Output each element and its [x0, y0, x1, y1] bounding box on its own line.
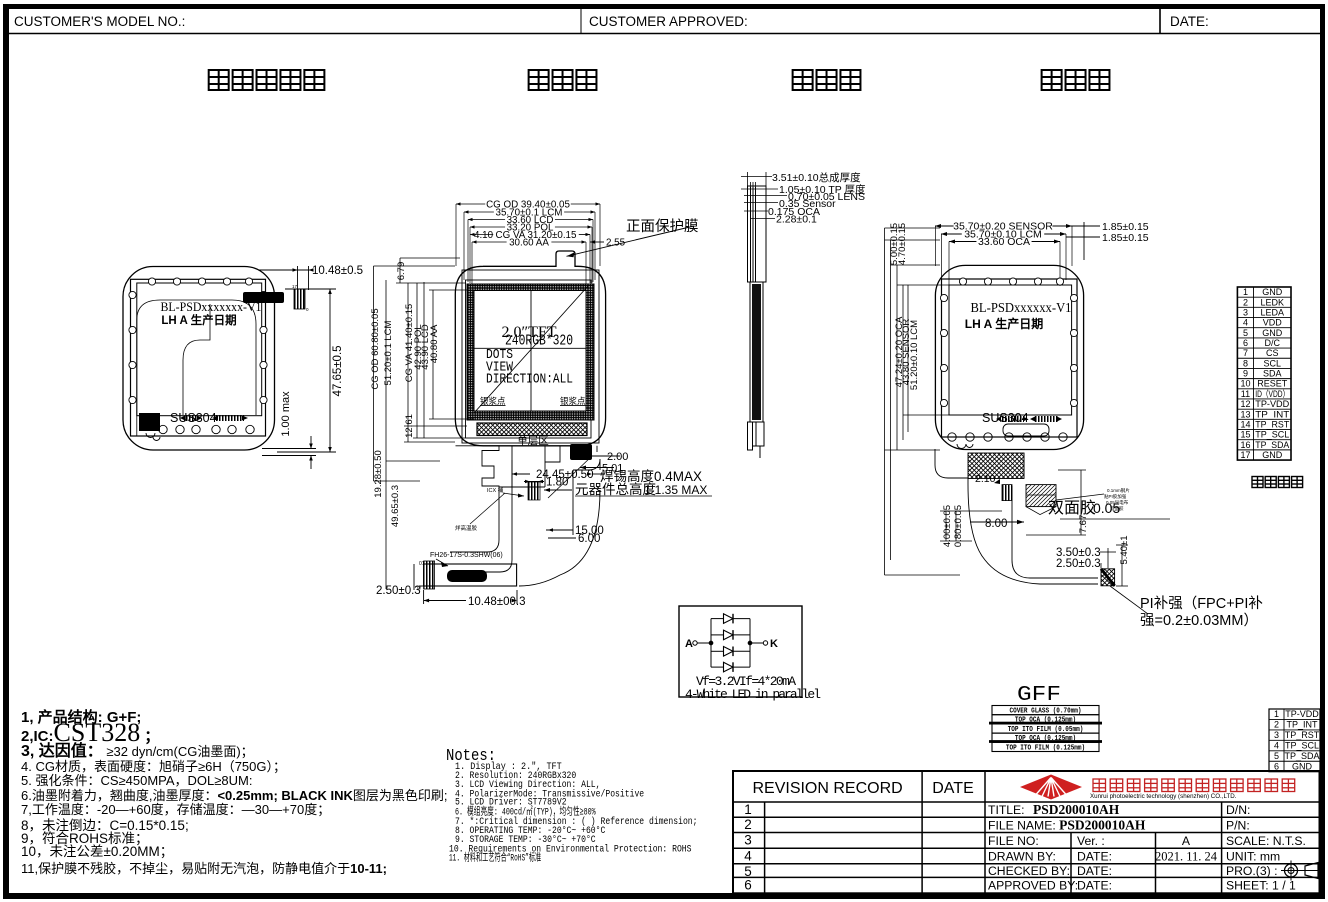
svg-text:12.61: 12.61 — [404, 414, 415, 438]
svg-text:TP_RST: TP_RST — [1255, 419, 1289, 429]
svg-text:TP_RST: TP_RST — [1285, 730, 1320, 740]
svg-text:LEDA: LEDA — [1260, 307, 1284, 317]
svg-text:UNIT: mm: UNIT: mm — [1226, 850, 1280, 864]
svg-text:16: 16 — [1240, 440, 1250, 450]
svg-text:Xunrui photoelectric technolog: Xunrui photoelectric technology (shenzhe… — [1090, 793, 1237, 800]
svg-text:正面保护膜: 正面保护膜 — [626, 218, 699, 235]
svg-text:A: A — [685, 638, 693, 650]
svg-text:1.00 max: 1.00 max — [280, 391, 292, 437]
svg-text:LH A 生产日期: LH A 生产日期 — [161, 313, 236, 327]
svg-text:DATE:: DATE: — [1077, 864, 1112, 878]
svg-text:0.1mm钢片: 0.1mm钢片 — [1107, 487, 1130, 494]
svg-text:RESET: RESET — [1257, 379, 1288, 389]
svg-text:DATE:: DATE: — [1170, 14, 1209, 29]
svg-text:D/C: D/C — [1265, 338, 1281, 348]
svg-text:2: 2 — [1274, 720, 1279, 730]
svg-text:CUSTOMER APPROVED:: CUSTOMER APPROVED: — [589, 14, 748, 29]
svg-text:6.00: 6.00 — [578, 533, 600, 545]
svg-text:TITLE:: TITLE: — [988, 803, 1025, 817]
svg-text:10.48±00.3: 10.48±00.3 — [468, 596, 525, 608]
svg-text:7: 7 — [1243, 348, 1248, 358]
svg-text:TP_SDA: TP_SDA — [1284, 751, 1319, 761]
svg-text:P/N:: P/N: — [1226, 819, 1250, 833]
svg-text:FH26-17S-0.3SHW(06): FH26-17S-0.3SHW(06) — [430, 552, 503, 559]
svg-text:VDD: VDD — [1263, 318, 1283, 328]
svg-text:2: 2 — [744, 817, 752, 832]
svg-text:11: 11 — [1241, 389, 1250, 399]
svg-text:4: 4 — [744, 848, 752, 863]
svg-text:SHEET: 1 / 1: SHEET: 1 / 1 — [1226, 879, 1296, 893]
svg-text:4: 4 — [1274, 741, 1279, 751]
svg-text:1: 1 — [744, 802, 752, 817]
svg-text:TP_SCL: TP_SCL — [1285, 741, 1319, 751]
svg-text:1.85±0.15: 1.85±0.15 — [1102, 232, 1149, 244]
svg-text:SCALE: N.T.S.: SCALE: N.T.S. — [1226, 834, 1306, 848]
svg-text:银浆点: 银浆点 — [560, 396, 586, 406]
svg-text:9: 9 — [1243, 369, 1248, 379]
svg-text:6: 6 — [744, 877, 752, 892]
svg-text:LEDK: LEDK — [1260, 297, 1284, 307]
svg-text:PI补强（FPC+PI补: PI补强（FPC+PI补 — [1140, 595, 1263, 612]
svg-text:3: 3 — [1274, 730, 1279, 740]
svg-text:TP_INT: TP_INT — [1286, 720, 1318, 730]
svg-text:Ver. :: Ver. : — [1077, 834, 1105, 848]
svg-text:14: 14 — [1240, 419, 1250, 429]
svg-text:51.20±0.10 LCM: 51.20±0.10 LCM — [909, 320, 920, 390]
svg-text:2: 2 — [1243, 297, 1248, 307]
svg-text:CUSTOMER'S MODEL NO.:: CUSTOMER'S MODEL NO.: — [14, 14, 185, 29]
svg-text:ID（VDD）: ID（VDD） — [1255, 389, 1289, 399]
svg-text:GND: GND — [1262, 287, 1283, 297]
svg-text:GND: GND — [1262, 450, 1283, 460]
svg-text:6.油墨附着力，翘曲度,油墨厚度：<0.25mm; B: 6.油墨附着力，翘曲度,油墨厚度：<0.25mm; BLACK INK图层为黑色… — [21, 788, 448, 803]
svg-text:APPROVED BY:: APPROVED BY: — [988, 879, 1078, 893]
svg-text:SDA: SDA — [1263, 369, 1282, 379]
svg-text:0.80±0.05: 0.80±0.05 — [953, 505, 964, 547]
svg-text:单层区: 单层区 — [517, 435, 549, 447]
svg-text:强=0.2±0.03MM）: 强=0.2±0.03MM） — [1140, 612, 1258, 629]
svg-text:DATE:: DATE: — [1077, 850, 1112, 864]
svg-text:17: 17 — [292, 284, 298, 289]
svg-text:TOP ITO FILM (0.125mm): TOP ITO FILM (0.125mm) — [1006, 744, 1085, 752]
svg-text:1.80: 1.80 — [546, 477, 568, 489]
svg-text:3.51±0.10总成厚度: 3.51±0.10总成厚度 — [772, 171, 861, 184]
svg-text:PSD200010AH: PSD200010AH — [1033, 802, 1120, 817]
svg-text:8.00: 8.00 — [985, 518, 1007, 530]
svg-text:240RGB*320: 240RGB*320 — [505, 334, 573, 350]
svg-text:2021. 11. 24: 2021. 11. 24 — [1155, 850, 1218, 864]
svg-text:REVISION RECORD: REVISION RECORD — [752, 780, 902, 797]
svg-text:4.10: 4.10 — [474, 230, 494, 241]
svg-text:3, 达因值： ≥32 dyn/cm(CG油墨面)；: 3, 达因值： ≥32 dyn/cm(CG油墨面)； — [21, 741, 254, 760]
svg-text:51.20±0.1 LCM: 51.20±0.1 LCM — [383, 320, 394, 385]
svg-text:SCL: SCL — [1263, 358, 1281, 368]
svg-text:CG OD 60.80±0.05: CG OD 60.80±0.05 — [370, 308, 381, 389]
svg-text:TP_SCL: TP_SCL — [1255, 430, 1289, 440]
svg-text:2.50±0.3: 2.50±0.3 — [1056, 558, 1101, 570]
svg-text:15: 15 — [1240, 430, 1250, 440]
svg-text:6.79: 6.79 — [396, 262, 407, 281]
svg-text:5: 5 — [1243, 328, 1248, 338]
svg-text:DIRECTION:ALL: DIRECTION:ALL — [486, 373, 573, 388]
svg-text:17: 17 — [1240, 450, 1250, 460]
svg-text:GFF: GFF — [1017, 684, 1061, 707]
svg-text:双面胶: 双面胶 — [1048, 499, 1096, 517]
svg-text:2.28±0.1: 2.28±0.1 — [776, 214, 817, 226]
svg-text:银浆点: 银浆点 — [480, 396, 506, 406]
svg-text:GND: GND — [1262, 328, 1283, 338]
svg-text:1-1.35 MAX: 1-1.35 MAX — [644, 483, 707, 497]
svg-text:7,工作温度：-20—+60度，存储温度：—30—+70度；: 7,工作温度：-20—+60度，存储温度：—30—+70度； — [21, 802, 330, 818]
svg-text:CS: CS — [1266, 348, 1279, 358]
svg-text:ICX 補: ICX 補 — [487, 486, 504, 494]
svg-text:11,保护膜不残胶，不掉尘，易贴附无汽泡，防静电值介于10-: 11,保护膜不残胶，不掉尘，易贴附无汽泡，防静电值介于10-11; — [21, 861, 387, 876]
svg-text:5. 强化条件：CS≥450MPA，DOL≥8UM:: 5. 强化条件：CS≥450MPA，DOL≥8UM: — [21, 773, 252, 788]
svg-text:10，未注公差±0.20MM；: 10，未注公差±0.20MM； — [21, 844, 173, 860]
svg-text:3: 3 — [1243, 307, 1248, 317]
svg-text:5: 5 — [1274, 751, 1279, 761]
svg-text:DATE: DATE — [932, 780, 973, 797]
svg-text:LH A 生产日期: LH A 生产日期 — [965, 316, 1043, 331]
svg-text:DATE:: DATE: — [1077, 879, 1112, 893]
svg-text:1: 1 — [1274, 709, 1279, 719]
svg-text:40.80 AA: 40.80 AA — [429, 324, 440, 363]
svg-text:GND: GND — [1292, 761, 1313, 771]
svg-text:6: 6 — [1274, 761, 1279, 771]
svg-text:12: 12 — [1240, 399, 1250, 409]
svg-text:6: 6 — [1243, 338, 1248, 348]
svg-text:1: 1 — [1243, 287, 1248, 297]
svg-text:33.60 OCA: 33.60 OCA — [978, 236, 1030, 248]
svg-text:3: 3 — [744, 833, 752, 848]
svg-text:4.00±0.05: 4.00±0.05 — [942, 505, 953, 547]
svg-text:49.65±0.3: 49.65±0.3 — [390, 485, 401, 527]
svg-text:FILE NAME: PSD200010AH: FILE NAME: PSD200010AH — [988, 818, 1146, 833]
svg-text:TP-VDD: TP-VDD — [1255, 399, 1290, 409]
svg-text:PRO.(3) :: PRO.(3) : — [1226, 864, 1277, 878]
svg-text:30.60 AA: 30.60 AA — [509, 237, 549, 248]
svg-text:13: 13 — [1240, 409, 1250, 419]
svg-text:01: 01 — [419, 561, 425, 567]
svg-text:2.10: 2.10 — [975, 473, 996, 485]
svg-text:10: 10 — [1240, 379, 1250, 389]
svg-text:TP_INT: TP_INT — [1255, 409, 1290, 419]
svg-text:TP_SDA: TP_SDA — [1255, 440, 1289, 450]
svg-text:47.65±0.5: 47.65±0.5 — [332, 345, 344, 396]
svg-text:2.00: 2.00 — [607, 451, 628, 463]
svg-text:4.70±0.15: 4.70±0.15 — [897, 223, 908, 265]
svg-text:TP-VDD: TP-VDD — [1285, 709, 1319, 719]
svg-text:D/N:: D/N: — [1226, 803, 1250, 817]
svg-text:0.05导电布: 0.05导电布 — [1106, 499, 1129, 506]
svg-text:4: 4 — [1243, 318, 1248, 328]
svg-text:4-White LED in parallel: 4-White LED in parallel — [685, 687, 821, 702]
svg-text:K: K — [770, 638, 778, 650]
svg-text:7.67: 7.67 — [1078, 515, 1089, 534]
svg-text:11. 材料和工艺符合“RoHS”标准: 11. 材料和工艺符合“RoHS”标准 — [449, 851, 541, 865]
svg-text:8: 8 — [1243, 358, 1248, 368]
svg-text:CHECKED BY:: CHECKED BY: — [988, 864, 1070, 878]
svg-text:DRAWN BY:: DRAWN BY: — [988, 850, 1056, 864]
svg-text:FILE NO:: FILE NO: — [988, 834, 1039, 848]
svg-text:BL-PSDxxxxxx-V1: BL-PSDxxxxxx-V1 — [971, 300, 1072, 315]
svg-text:烊高温胶: 烊高温胶 — [455, 524, 478, 532]
svg-text:双面胶: 双面胶 — [1110, 505, 1124, 512]
svg-text:10.48±0.5: 10.48±0.5 — [312, 265, 363, 277]
svg-text:A: A — [1182, 834, 1191, 848]
svg-text:贴PI胶加强: 贴PI胶加强 — [1104, 493, 1127, 500]
svg-text:5.40±1: 5.40±1 — [1119, 536, 1130, 565]
svg-text:19.28±0.50: 19.28±0.50 — [373, 450, 384, 497]
